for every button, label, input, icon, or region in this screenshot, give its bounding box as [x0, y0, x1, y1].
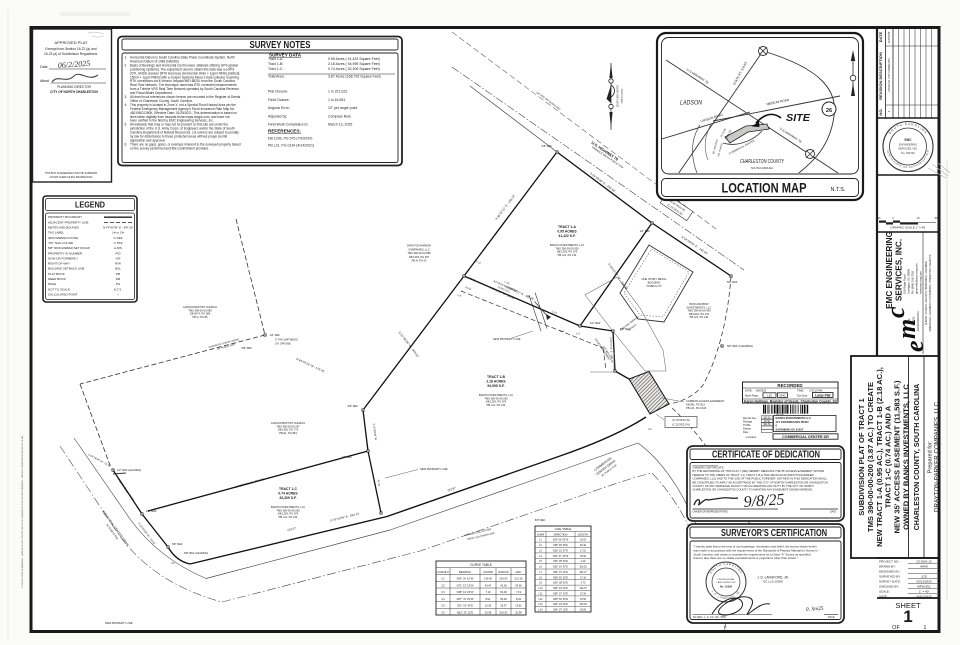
svg-text:9. Sm25: 9. Sm25 [806, 606, 824, 613]
svg-text:ENGINEERING: ENGINEERING [899, 143, 917, 147]
svg-text:Date: Date [743, 431, 749, 434]
svg-text:EMC: EMC [904, 138, 912, 142]
svg-text:2.18 Acres ( 94,995 Square Fe: 2.18 Acres ( 94,995 Square Feet) [328, 62, 380, 66]
svg-text:SERVICES, INC.: SERVICES, INC. [898, 147, 918, 151]
svg-text:METES AND BOUNDS: METES AND BOUNDS [48, 226, 79, 230]
svg-text:"PK" NAIL FOUND: "PK" NAIL FOUND [48, 241, 74, 245]
svg-text:REVISION DESCRIPTION: REVISION DESCRIPTION [878, 52, 883, 100]
svg-text:R/W: R/W [115, 262, 121, 266]
svg-text:LOCATION MAP: LOCATION MAP [722, 181, 807, 196]
svg-text:BEARING: BEARING [459, 570, 471, 574]
svg-text:No. 10390: No. 10390 [720, 585, 733, 589]
svg-text:WPW/JDL: WPW/JDL [917, 584, 931, 588]
svg-text:1/2" REF: 1/2" REF [270, 333, 281, 337]
svg-text:1/2" REF: 1/2" REF [590, 321, 601, 325]
svg-text:S54° 07' 10"E: S54° 07' 10"E [553, 571, 568, 574]
svg-text:MARINE: MARINE [913, 316, 916, 326]
svg-text:5/8" REF: 5/8" REF [348, 404, 359, 408]
svg-text:25.37: 25.37 [500, 604, 507, 608]
svg-text:N54° 37' 42"W: N54° 37' 42"W [553, 555, 569, 558]
svg-text:REFERENCES:: REFERENCES: [268, 129, 301, 134]
svg-text:N 47°43'34" E - 497.26': N 47°43'34" E - 497.26' [103, 226, 133, 230]
svg-text:NOW OR FORMERLY: NOW OR FORMERLY [48, 256, 78, 260]
svg-text:C4: C4 [441, 597, 445, 601]
svg-text:94,995 S.F.: 94,995 S.F. [487, 384, 504, 388]
svg-text:1: 1 [903, 607, 912, 626]
svg-text:(S 10°05'31 W): (S 10°05'31 W) [672, 418, 690, 422]
svg-text:0.95 Acres ( 41,422 Square Fe: 0.95 Acres ( 41,422 Square Feet) [328, 57, 380, 61]
svg-text:COMPANIES, LLC: COMPANIES, LLC [408, 247, 430, 251]
svg-text:BE CONSTRUED TO IMPLY AN ACCEP: BE CONSTRUED TO IMPLY AN ACCEPTANCE BY T… [693, 480, 828, 484]
svg-text:PROPERTY BOUNDARY: PROPERTY BOUNDARY [48, 215, 82, 219]
svg-text:S54° 07' 10"E: S54° 07' 10"E [553, 592, 568, 595]
svg-text:Adjusted by:: Adjusted by: [268, 114, 287, 118]
svg-text:PB L21, PG 0134: PB L21, PG 0134 [686, 406, 707, 410]
svg-text:OF: OF [892, 625, 900, 631]
svg-text:N.T.S.: N.T.S. [831, 187, 846, 193]
svg-text:146.73: 146.73 [579, 587, 587, 590]
svg-text:CHARLESTON OR CHARLESTON COUNT: CHARLESTON OR CHARLESTON COUNTY TO MAINT… [693, 488, 814, 492]
svg-text:39.60: 39.60 [580, 555, 587, 558]
svg-text:S62° 16' 42"E: S62° 16' 42"E [553, 566, 568, 569]
svg-text:Exempt from Section 16-22 (a): Exempt from Section 16-22 (a) and [45, 47, 96, 51]
svg-text:7.19: 7.19 [485, 590, 491, 594]
svg-text:HEREON TO THE USERS OF TRACT 1: HEREON TO THE USERS OF TRACT 1-A, TRACT … [693, 473, 814, 477]
svg-text:18.02: 18.02 [580, 539, 587, 542]
svg-text:NO.: NO. [878, 108, 883, 115]
svg-text:COUNTY OF ANY DRAINAGE FACILIT: COUNTY OF ANY DRAINAGE FACILITY OR AS CR… [693, 484, 814, 488]
svg-text:1.: 1. [125, 56, 128, 60]
svg-text:S62° 16' 42"E: S62° 16' 42"E [553, 603, 568, 606]
svg-text:PLANNING DIRECTOR: PLANNING DIRECTOR [57, 85, 91, 89]
svg-text:CHARLESTON COUNTY, SOUTH CAROL: CHARLESTON COUNTY, SOUTH CAROLINA [914, 384, 921, 530]
svg-text:S35° 08' 25"W: S35° 08' 25"W [553, 539, 569, 542]
svg-text:SURVEY DATE:: SURVEY DATE: [879, 579, 901, 583]
svg-text:N57° 47' 31"W: N57° 47' 31"W [457, 597, 474, 601]
svg-text:BSL: BSL [115, 267, 121, 271]
svg-text:5/8" REF (CLEARING): 5/8" REF (CLEARING) [727, 344, 753, 348]
svg-text:NEW 35' ACCESS EASEMENT (11,58: NEW 35' ACCESS EASEMENT (11,583 S.F.) [893, 380, 902, 533]
svg-text:RECORDED: RECORDED [777, 383, 802, 388]
svg-text:L25: L25 [767, 393, 772, 397]
svg-text:4.: 4. [125, 103, 128, 107]
svg-text:152.17: 152.17 [579, 571, 587, 574]
svg-text:SITE: SITE [786, 112, 811, 124]
svg-text:35.00: 35.00 [580, 609, 587, 612]
svg-text:NOT TO SCALE: NOT TO SCALE [48, 287, 70, 291]
svg-text:DRAYTON-PARKER: DRAYTON-PARKER [407, 244, 431, 248]
svg-text:130.33: 130.33 [579, 603, 587, 606]
svg-text:50.00: 50.00 [500, 590, 507, 594]
svg-text:1" = 40': 1" = 40' [919, 589, 929, 593]
svg-text:PB: PB [116, 272, 120, 276]
svg-text:DRAWN BY:: DRAWN BY: [879, 565, 896, 569]
svg-text:0342: 0342 [779, 393, 786, 397]
svg-text:ONE STORY METAL: ONE STORY METAL [641, 277, 667, 281]
svg-text:CHARLESTON COUNTY: CHARLESTON COUNTY [740, 159, 785, 165]
svg-text:1 in 16,691: 1 in 16,691 [328, 98, 345, 102]
svg-text:NEW PROPERTY LINE: NEW PROPERTY LINE [420, 467, 448, 471]
svg-text:Karen Hollings, Register of De: Karen Hollings, Register of Deeds, Charl… [744, 399, 838, 403]
svg-text:PID: PID [115, 251, 121, 255]
svg-text:on the survey performed and ti: on the survey performed and title commit… [130, 146, 209, 150]
svg-text:C6: C6 [441, 610, 445, 614]
svg-text:N/F: N/F [116, 256, 121, 260]
svg-text:5.: 5. [125, 123, 128, 127]
svg-text:5/8" REF: 5/8" REF [727, 280, 738, 284]
svg-text:37.26: 37.26 [580, 592, 587, 595]
svg-text:LENGTH: LENGTH [578, 533, 588, 536]
svg-text:GRAPHIC SCALE 1" = 40': GRAPHIC SCALE 1" = 40' [890, 226, 926, 230]
svg-text:LINE#: LINE# [537, 533, 545, 536]
svg-text:DB: DB [116, 277, 120, 281]
svg-text:ALBANY • ATLANTA • AUGUSTA • B: ALBANY • ATLANTA • AUGUSTA • BRUNSWICK •… [925, 261, 928, 325]
svg-text:20.99: 20.99 [485, 610, 492, 614]
svg-text:26: 26 [826, 108, 832, 114]
svg-text:DATE: DATE [830, 511, 837, 514]
svg-text:S54° 07' 10"E: S54° 07' 10"E [553, 609, 568, 612]
svg-text:⊙ REF: ⊙ REF [113, 236, 123, 240]
svg-text:03/13/2025: 03/13/2025 [916, 579, 931, 583]
svg-text:○: ○ [117, 292, 119, 296]
svg-text:PLAT BOOK: PLAT BOOK [48, 272, 65, 276]
svg-text:therein; also there are no vis: therein; also there are no visible encro… [694, 556, 799, 560]
svg-text:Location:: Location: [746, 435, 758, 439]
svg-text:16.50: 16.50 [580, 598, 587, 601]
svg-text:C1: C1 [441, 577, 445, 581]
svg-text:20.99: 20.99 [515, 610, 522, 614]
svg-text:PB L21, PG 134: PB L21, PG 134 [558, 253, 577, 257]
svg-text:5/8" REF: 5/8" REF [172, 542, 183, 546]
svg-text:5/8" REF: 5/8" REF [542, 144, 553, 148]
svg-text:16.55: 16.55 [485, 604, 492, 608]
svg-text:G:\2023\23-2064.10 PARKERS - L: G:\2023\23-2064.10 PARKERS - LADSON & HW… [21, 436, 24, 589]
svg-text:Book-Page:: Book-Page: [745, 394, 759, 398]
svg-text:43.47: 43.47 [485, 583, 492, 587]
svg-text:C2: C2 [441, 583, 445, 587]
svg-text:0.74 ACRES: 0.74 ACRES [278, 491, 298, 495]
svg-text:TMS 390-00-00-089: TMS 390-00-00-089 [407, 251, 431, 255]
svg-text:COMMERCIAL CENTER DR: COMMERCIAL CENTER DR [782, 435, 829, 439]
svg-text:SUBDIVISION PLAT OF TRACT 1: SUBDIVISION PLAT OF TRACT 1 [857, 397, 866, 515]
svg-text:5/8" REF (LEANING): 5/8" REF (LEANING) [184, 551, 208, 555]
svg-text:23-2064.10: 23-2064.10 [916, 560, 932, 564]
svg-text:0.74 Acres ( 32,309 Square Fe: 0.74 Acres ( 32,309 Square Feet) [328, 67, 380, 71]
svg-text:CHORD: CHORD [483, 570, 493, 574]
svg-text:219.50: 219.50 [484, 577, 492, 581]
svg-text:5/8" REF: 5/8" REF [242, 346, 253, 350]
svg-text:9/9/2025: 9/9/2025 [756, 389, 767, 393]
svg-text:10" per angle point: 10" per angle point [328, 106, 357, 110]
svg-text:N35° 50' 35"E: N35° 50' 35"E [553, 598, 568, 601]
svg-text:ARC: ARC [516, 570, 522, 574]
svg-text:(C 22°59'21 W): (C 22°59'21 W) [672, 423, 690, 427]
svg-text:37.16: 37.16 [580, 576, 587, 579]
svg-text:L13: L13 [539, 603, 544, 606]
svg-text:COURT CLERK FILING INFORMATION: COURT CLERK FILING INFORMATION [50, 176, 93, 179]
svg-text:L# or C#: L# or C# [112, 231, 124, 235]
svg-text:Ph: (864) 318-3782: Ph: (864) 318-3782 [911, 270, 915, 294]
svg-text:TRACT 1-C (0.74 AC.) AND A: TRACT 1-C (0.74 AC.) AND A [884, 405, 893, 508]
svg-text:BANKS INVESTMENTS LLC: BANKS INVESTMENTS LLC [776, 416, 811, 420]
svg-text:TMS 390-00-00-200 (3.87 AC.) T: TMS 390-00-00-200 (3.87 AC.) TO CREATE [866, 382, 875, 532]
svg-text:PB L21, PG 134: PB L21, PG 134 [279, 515, 298, 519]
svg-text:DEED BOOK: DEED BOOK [48, 277, 66, 281]
svg-text:DB 1293, PG 607: DB 1293, PG 607 [409, 255, 430, 259]
svg-text:PROJECT NO.:: PROJECT NO.: [879, 560, 900, 564]
svg-text:L11: L11 [539, 592, 543, 595]
svg-text:S62° 16' 42"E: S62° 16' 42"E [553, 587, 568, 590]
svg-text:LAND SURVEYOR: LAND SURVEYOR [717, 581, 736, 584]
svg-text:SCSP GRID NORTH: SCSP GRID NORTH [617, 85, 620, 108]
svg-text:S63° 08' 53"E: S63° 08' 53"E [553, 582, 568, 585]
svg-text:CHECKED BY:: CHECKED BY: [879, 584, 899, 588]
svg-text:N38° 55' 26"E: N38° 55' 26"E [553, 576, 568, 579]
svg-text:SAVANNAH GA 31407: SAVANNAH GA 31407 [776, 427, 804, 431]
svg-text:43.96: 43.96 [515, 583, 522, 587]
svg-text:15.81: 15.81 [515, 604, 522, 608]
svg-text:32,309 S.F.: 32,309 S.F. [279, 496, 296, 500]
svg-text:Date: Date [40, 65, 48, 69]
svg-text:LINE TABLE: LINE TABLE [555, 527, 572, 531]
svg-text:50.00: 50.00 [500, 597, 507, 601]
svg-text:CURVE #: CURVE # [437, 570, 449, 574]
svg-text:C3: C3 [441, 590, 445, 594]
svg-text:GREENVILLE • SAVANNAH • STATES: GREENVILLE • SAVANNAH • STATESBORO • THO… [929, 254, 932, 331]
svg-text:DATE: DATE [828, 616, 835, 619]
svg-text:1/2" REF: 1/2" REF [342, 455, 353, 459]
svg-text:SERVICES, INC.: SERVICES, INC. [895, 239, 904, 301]
svg-text:1/2" REF: 1/2" REF [146, 509, 157, 513]
svg-text:1/2" REF (LEANING): 1/2" REF (LEANING) [117, 468, 141, 472]
svg-text:CURVE TABLE: CURVE TABLE [470, 563, 492, 567]
svg-text:8.01: 8.01 [485, 597, 491, 601]
svg-text:516.63: 516.63 [500, 577, 508, 581]
svg-text:LADSON: LADSON [680, 100, 702, 107]
svg-text:TIME:: TIME: [797, 389, 804, 393]
svg-text:41,422 S.F.: 41,422 S.F. [558, 234, 575, 238]
svg-text:ENVIRONMENTAL: ENVIRONMENTAL [917, 310, 920, 331]
svg-text:No. 003720: No. 003720 [901, 151, 915, 155]
svg-text:IRON REBAR FOUND: IRON REBAR FOUND [48, 236, 79, 240]
svg-text:SOUTH CAROLINA: SOUTH CAROLINA [751, 166, 773, 170]
svg-text:NEW TRACT 1-A (0.95 AC.), TRAC: NEW TRACT 1-A (0.95 AC.), TRACT 1-B (2.1… [875, 367, 884, 547]
svg-text:NEW PROPERTY LINE: NEW PROPERTY LINE [493, 337, 521, 341]
svg-text:RIGHT-OF-WAY: RIGHT-OF-WAY [48, 262, 70, 266]
svg-text:Tract 1-B:: Tract 1-B: [268, 62, 283, 66]
svg-text:PB L21, PG 134: PB L21, PG 134 [487, 403, 506, 407]
svg-text:Lexington, SC 29066: Lexington, SC 29066 [907, 268, 911, 294]
svg-text:OWNERS CERTIFICATE:: OWNERS CERTIFICATE: [693, 466, 725, 470]
svg-text:greenville@emc-eng.com: greenville@emc-eng.com [915, 263, 919, 294]
svg-text:LEGEND: LEGEND [75, 200, 105, 210]
svg-text:1/2" REF: 1/2" REF [640, 229, 651, 233]
svg-text:3.: 3. [125, 95, 128, 99]
svg-text:RADIUS: RADIUS [498, 570, 508, 574]
svg-text:Total Area:: Total Area: [268, 75, 285, 79]
svg-text:9/8/25: 9/8/25 [743, 491, 785, 511]
svg-text:Compass Rule: Compass Rule [328, 114, 351, 118]
svg-text:JCD: JCD [921, 574, 928, 578]
svg-text:SC LLS 10390: SC LLS 10390 [763, 580, 783, 584]
svg-text:SURVEYOR'S CERTIFICATION: SURVEYOR'S CERTIFICATION [721, 528, 827, 539]
svg-text:Plat Closure:: Plat Closure: [268, 90, 288, 94]
svg-text:www.emc-eng.com: www.emc-eng.com [920, 271, 923, 294]
svg-text:PG: PG [116, 282, 121, 286]
svg-text:PB Q, PG 85: PB Q, PG 85 [193, 315, 209, 319]
svg-text:6.: 6. [125, 142, 128, 146]
svg-text:Field Closure:: Field Closure: [268, 98, 290, 102]
svg-text:March 13, 2025: March 13, 2025 [328, 123, 352, 127]
svg-text:TAG LABEL: TAG LABEL [48, 231, 64, 235]
svg-text:OWNED BY BANKS INVESTMENTS, LL: OWNED BY BANKS INVESTMENTS, LLC [902, 384, 911, 530]
svg-text:L14: L14 [539, 609, 544, 612]
svg-text:17.01: 17.01 [580, 549, 587, 552]
svg-text:2.18 ACRES: 2.18 ACRES [486, 379, 506, 383]
svg-text:3.70: 3.70 [581, 582, 586, 585]
svg-text:WPW: WPW [920, 565, 928, 569]
svg-text:CALCULATED POINT: CALCULATED POINT [48, 292, 78, 296]
svg-text:N38° 13' 23"W: N38° 13' 23"W [457, 590, 474, 594]
svg-text:EMC ENGINEERING: EMC ENGINEERING [885, 231, 894, 309]
svg-text:"O'REILLY'S": "O'REILLY'S" [646, 284, 662, 288]
svg-text:0.95 ACRES: 0.95 ACRES [557, 229, 577, 233]
svg-text:DocType:: DocType: [797, 394, 808, 398]
svg-text:S63° 26' 10"W: S63° 26' 10"W [457, 577, 474, 581]
svg-text:PB L21, PG 0134 (4/14/2021): PB L21, PG 0134 (4/14/2021) [268, 144, 314, 148]
svg-text:⊙ PKF: ⊙ PKF [113, 241, 122, 245]
svg-text:DATE:: DATE: [745, 389, 753, 393]
svg-text:64.40: 64.40 [580, 544, 587, 547]
svg-text:PAGE: PAGE [48, 282, 56, 286]
svg-text:ADDRESS CITY COMMENTS: ADDRESS CITY COMMENTS [888, 58, 891, 92]
svg-text:SCALE:: SCALE: [879, 589, 890, 593]
svg-text:CIVIL: CIVIL [908, 317, 911, 324]
svg-text:Attest: Attest [40, 79, 49, 83]
svg-text:Field Work Completed on:: Field Work Completed on: [268, 123, 308, 127]
svg-text:ADJACENT PROPERTY LINE: ADJACENT PROPERTY LINE [48, 220, 89, 224]
svg-text:APPROVED PLAT: APPROVED PLAT [54, 40, 88, 45]
svg-text:BUILDING: BUILDING [648, 280, 661, 284]
svg-text:Angular Error:: Angular Error: [268, 106, 290, 110]
svg-text:3.87 Acres (168,726 Square Fee: 3.87 Acres (168,726 Square Feet) [328, 75, 381, 79]
svg-text:BUILDING SETBACK LINE: BUILDING SETBACK LINE [48, 267, 85, 271]
svg-text:150.53: 150.53 [579, 566, 587, 569]
svg-text:COMPANIES, LLC) AND TO THE USE: COMPANIES, LLC) AND TO THE USE OF THE PU… [693, 477, 828, 481]
svg-text:DRAYTON-PARKER COMPANIES, LLC: DRAYTON-PARKER COMPANIES, LLC [934, 402, 941, 512]
svg-text:NAD 83 (2011): NAD 83 (2011) [621, 89, 624, 104]
svg-text:COMMON ACCESS EASEMENT: COMMON ACCESS EASEMENT [686, 399, 725, 403]
svg-text:8.02: 8.02 [516, 597, 522, 601]
svg-text:Tract 1-C:: Tract 1-C: [268, 67, 283, 71]
svg-text:108 Ridge Road: 108 Ridge Road [903, 274, 907, 294]
svg-text:N.T.S.: N.T.S. [114, 287, 122, 291]
svg-text:221.18: 221.18 [515, 577, 523, 581]
svg-text:2.49: 2.49 [581, 560, 586, 563]
svg-text:N30° 22' 07"E: N30° 22' 07"E [553, 549, 568, 552]
svg-text:2" PVC (WITNESS): 2" PVC (WITNESS) [275, 338, 298, 342]
svg-text:BY THE RECORDING OF THIS PLAT,: BY THE RECORDING OF THIS PLAT, I (WE) HE… [693, 469, 825, 473]
svg-text:N52° 23' 12"E: N52° 23' 12"E [457, 610, 473, 614]
svg-text:09/05/2025: 09/05/2025 [889, 31, 891, 43]
svg-text:DB 981, PG 912: DB 981, PG 912 [686, 402, 705, 406]
svg-text:DB 1293, PG 075 (7/9/2024): DB 1293, PG 075 (7/9/2024) [268, 137, 312, 141]
svg-text:S38° 45' 36"E: S38° 45' 36"E [553, 544, 568, 547]
svg-text:S63° 08' 53"E: S63° 08' 53"E [553, 560, 568, 563]
svg-text:TRACT 1-B: TRACT 1-B [487, 375, 505, 379]
svg-text:e: e [900, 340, 929, 352]
svg-text:16-23 (a) of Subdivision Regul: 16-23 (a) of Subdivision Regulations. [44, 52, 98, 56]
svg-text:PROPERTY ID NUMBER: PROPERTY ID NUMBER [48, 251, 83, 255]
svg-text:CERTIFICATE OF DEDICATION: CERTIFICATE OF DEDICATION [712, 450, 820, 461]
svg-text:2.: 2. [125, 63, 128, 67]
svg-text:516.63: 516.63 [500, 610, 508, 614]
svg-text:DESIGNED BY:: DESIGNED BY: [879, 570, 900, 574]
svg-text:1 in 221,022: 1 in 221,022 [328, 90, 347, 94]
svg-text:S21° 01' 43"E: S21° 01' 43"E [457, 604, 473, 608]
svg-text:PB EL, PG 843: PB EL, PG 843 [279, 431, 297, 435]
svg-text:Large Plat: Large Plat [815, 394, 831, 398]
svg-text:1: 1 [924, 625, 927, 631]
svg-text:PROFESSIONAL: PROFESSIONAL [717, 578, 735, 581]
svg-text:THIS BOX IS RESERVED FOR THE S: THIS BOX IS RESERVED FOR THE SUPERIOR [45, 172, 97, 175]
svg-text:Tract 1-A:: Tract 1-A: [268, 57, 283, 61]
svg-text:5/8" REF: 5/8" REF [535, 518, 546, 522]
svg-text:TRACT 1-C: TRACT 1-C [279, 487, 297, 491]
svg-text:L10: L10 [539, 587, 544, 590]
svg-text:7.19: 7.19 [516, 590, 522, 594]
svg-text:DATE: DATE [878, 31, 883, 42]
svg-text:2:36:19 PM: 2:36:19 PM [809, 389, 822, 393]
svg-text:OWNER OR REPRESENTATIVE: OWNER OR REPRESENTATIVE [693, 511, 729, 514]
svg-text:5/8" IRON REBAR SET W/CAP: 5/8" IRON REBAR SET W/CAP [48, 246, 90, 250]
svg-text:C5: C5 [441, 604, 445, 608]
svg-text:SC REG. L. S. LIC. NO. 7830: SC REG. L. S. LIC. NO. 7830 [693, 616, 726, 619]
svg-text:PB L21, PG 134: PB L21, PG 134 [690, 315, 709, 319]
svg-text:L12: L12 [539, 598, 544, 601]
svg-text:PB N, PG 42: PB N, PG 42 [412, 259, 427, 263]
svg-text:● IRS: ● IRS [114, 246, 122, 250]
svg-text:5/8" REF: 5/8" REF [620, 327, 631, 331]
svg-text:TRACT 1-A: TRACT 1-A [558, 225, 576, 229]
svg-text:CITY OF NORTH CHARLESTON: CITY OF NORTH CHARLESTON [50, 90, 98, 94]
svg-text:42.00: 42.00 [500, 583, 507, 587]
svg-text:0.8' OFFLINE: 0.8' OFFLINE [275, 342, 291, 346]
svg-text:DIRECTION: DIRECTION [554, 533, 568, 536]
svg-text:SURVEYED BY:: SURVEYED BY: [879, 574, 901, 578]
svg-text:NEW PROPERTY LINE: NEW PROPERTY LINE [105, 621, 133, 625]
svg-text:N71° 13' 13"W: N71° 13' 13"W [457, 583, 474, 587]
svg-text:SURVEY NOTES: SURVEY NOTES [250, 40, 311, 51]
svg-text:171 CROSSROADS PKWY: 171 CROSSROADS PKWY [776, 420, 810, 424]
